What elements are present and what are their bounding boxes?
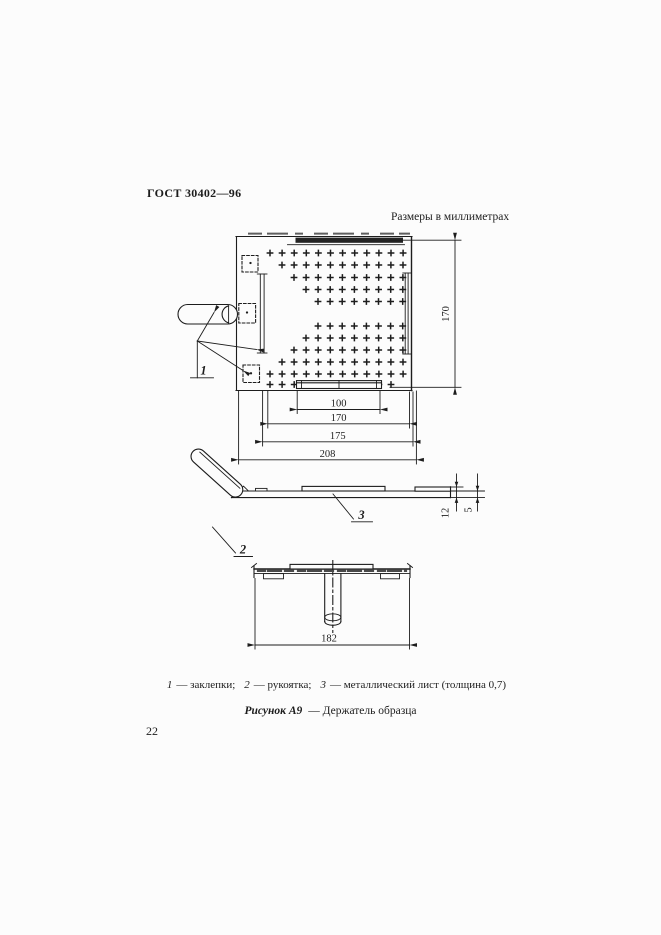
figure-caption-title: — Держатель образца xyxy=(308,705,416,717)
side-dim-arrows xyxy=(455,482,480,503)
side-extension-lines xyxy=(451,474,485,511)
perforation-grid xyxy=(267,250,407,388)
plate-outline xyxy=(236,234,412,391)
bottom-clamp-bar xyxy=(297,381,382,389)
left-guide-strip xyxy=(257,274,267,353)
dim-text-12: 12 xyxy=(441,508,452,519)
top-clamp-bar xyxy=(288,238,405,245)
legend-num-2: 2 xyxy=(244,679,250,691)
legend-num-3: 3 xyxy=(320,679,326,691)
document-page: ГОСТ 30402—96 Размеры в миллиметрах xyxy=(0,0,661,935)
strip-profile-left xyxy=(302,486,385,491)
page-number: 22 xyxy=(146,724,158,739)
doc-code: ГОСТ 30402—96 xyxy=(147,186,241,201)
legend-text-3: — металлический лист (толщина 0,7) xyxy=(330,679,506,691)
strip-profile-right xyxy=(415,487,451,491)
rivets xyxy=(239,256,260,383)
dim-text-182: 182 xyxy=(321,634,337,645)
figure-svg: 1 170 xyxy=(140,225,520,665)
dim-text-175: 175 xyxy=(330,431,346,442)
legend-item-handle: 2— рукоятка; xyxy=(244,679,311,691)
legend-item-sheet: 3— металлический лист (толщина 0,7) xyxy=(320,679,506,691)
perforation-crosses xyxy=(267,250,407,388)
part-label-2: 2 xyxy=(239,543,246,557)
figure-caption: Рисунок А9— Держатель образца xyxy=(0,705,661,717)
dim-plate-height: 170 xyxy=(390,240,461,387)
label-handle: 2 xyxy=(213,527,253,557)
right-guide-strip xyxy=(403,273,411,354)
legend-text-1: — заклепки; xyxy=(176,679,235,691)
dim-text-208: 208 xyxy=(320,449,336,460)
dims-bottom: 100 170 175 208 xyxy=(239,391,417,464)
top-view: 1 170 xyxy=(178,234,461,464)
legend-text-2: — рукоятка; xyxy=(254,679,312,691)
dim-text-100: 100 xyxy=(331,398,347,409)
units-note: Размеры в миллиметрах xyxy=(391,211,509,223)
front-top-strip xyxy=(290,564,373,569)
legend-item-rivets: 1— заклепки; xyxy=(167,679,235,691)
figure-caption-label: Рисунок А9 xyxy=(244,705,302,717)
dim-text-170-bottom: 170 xyxy=(331,413,347,424)
dims-side: 12 5 xyxy=(441,474,485,518)
figure-legend: 1— заклепки;2— рукоятка;3— металлический… xyxy=(0,679,661,691)
front-view: 182 xyxy=(252,561,413,650)
left-clamp-edge xyxy=(256,488,268,491)
part-label-3: 3 xyxy=(357,508,364,522)
front-left-hook xyxy=(264,574,284,579)
label-sheet: 3 xyxy=(333,494,373,522)
front-right-hook xyxy=(381,574,400,579)
dim-text-5: 5 xyxy=(464,507,475,512)
handle-plan xyxy=(178,305,238,325)
part-label-1: 1 xyxy=(200,364,206,378)
handle-profile xyxy=(188,446,246,500)
legend-num-1: 1 xyxy=(167,679,173,691)
side-view: 2 3 xyxy=(188,446,485,557)
dim-text-170-right: 170 xyxy=(441,306,452,322)
